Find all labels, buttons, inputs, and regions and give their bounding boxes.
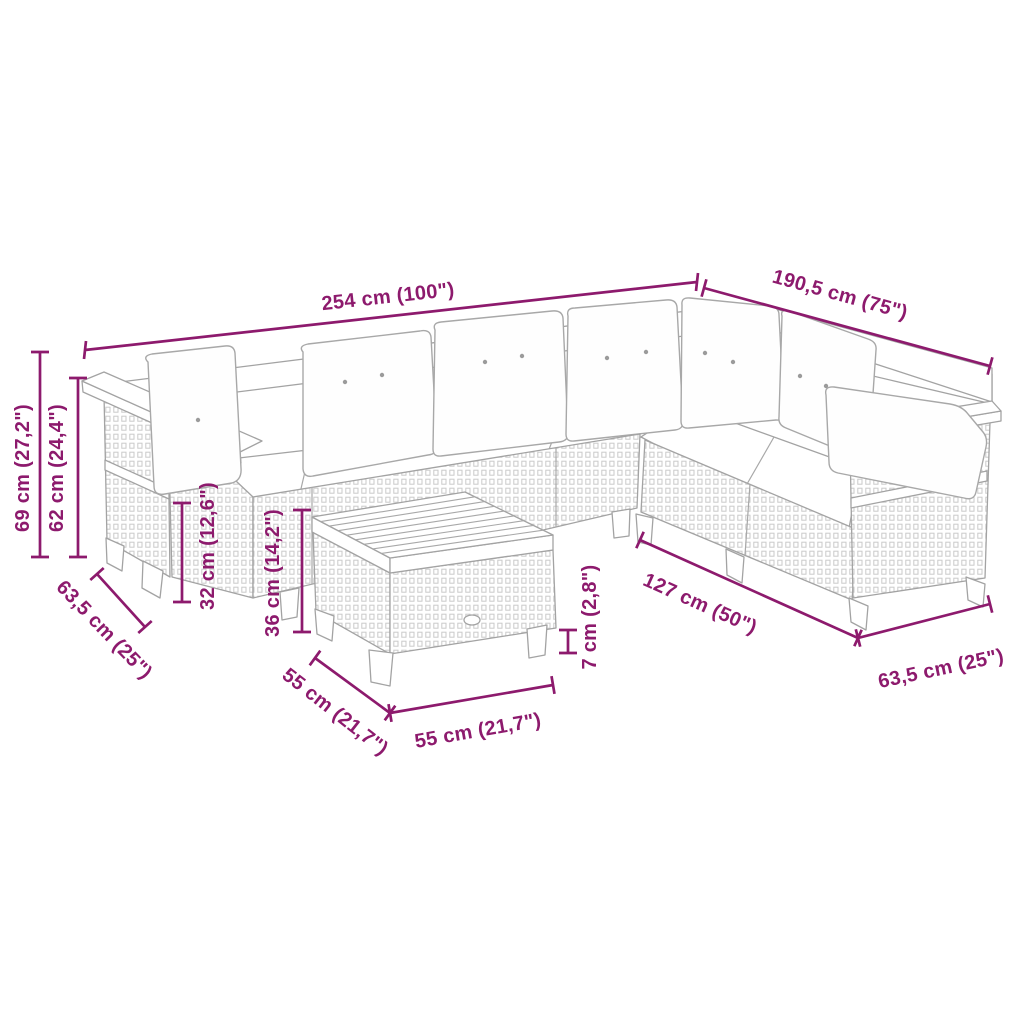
dimension-module-depth-right: 63,5 cm (25") bbox=[856, 595, 1006, 693]
back-cushion bbox=[433, 311, 568, 456]
dimension-label: 62 cm (24,4") bbox=[46, 404, 68, 532]
cushion-button bbox=[483, 360, 487, 364]
cushion-button bbox=[644, 350, 648, 354]
dimension-module-depth-left: 63,5 cm (25") bbox=[52, 568, 157, 684]
cushion-button bbox=[380, 373, 384, 377]
dimension-table-leg-height: 7 cm (2,8") bbox=[559, 564, 601, 669]
sofa-leg bbox=[849, 598, 868, 630]
back-cushion bbox=[566, 300, 683, 441]
dimension-label: 55 cm (21,7") bbox=[413, 709, 543, 753]
diagram-canvas: 254 cm (100") 190,5 cm (75") 69 cm (27,2… bbox=[0, 0, 1024, 1024]
dimension-label: 7 cm (2,8") bbox=[579, 564, 601, 669]
table-leg bbox=[369, 650, 393, 686]
dimension-table-width: 55 cm (21,7") bbox=[389, 676, 555, 753]
dimension-arm-height: 62 cm (24,4") bbox=[46, 378, 87, 557]
table-umbrella-hole bbox=[464, 615, 480, 625]
dimension-label: 63,5 cm (25") bbox=[876, 645, 1006, 693]
product-dimension-diagram: 254 cm (100") 190,5 cm (75") 69 cm (27,2… bbox=[0, 0, 1024, 1024]
cushion-button bbox=[703, 351, 707, 355]
sofa-leg bbox=[612, 509, 630, 538]
cushion-button bbox=[196, 418, 200, 422]
left-corner-pillow bbox=[146, 346, 241, 494]
dimension-label: 69 cm (27,2") bbox=[12, 404, 34, 532]
dimension-back-height: 69 cm (27,2") bbox=[12, 352, 49, 557]
dimension-label: 32 cm (12,6") bbox=[197, 482, 219, 610]
sofa-leg bbox=[966, 577, 985, 607]
cushion-button bbox=[798, 374, 802, 378]
cushion-button bbox=[605, 356, 609, 360]
table-leg bbox=[527, 625, 547, 658]
cushion-button bbox=[520, 354, 524, 358]
back-cushion bbox=[301, 331, 437, 477]
dimension-label: 36 cm (14,2") bbox=[262, 509, 284, 637]
cushion-button bbox=[343, 380, 347, 384]
cushion-button bbox=[731, 360, 735, 364]
coffee-table bbox=[312, 492, 556, 686]
